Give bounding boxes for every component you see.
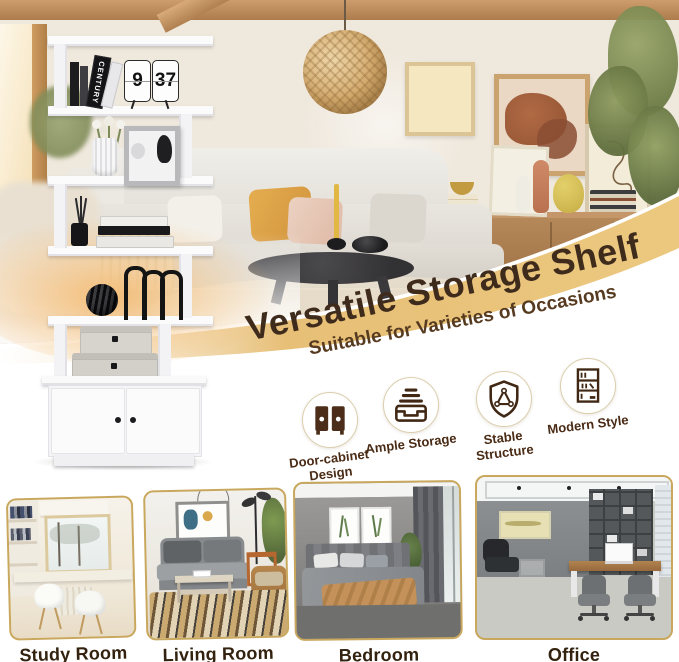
study-room-photo xyxy=(6,495,137,640)
book-stack xyxy=(96,216,172,246)
product-infographic: Versatile Storage Shelf Suitable for Var… xyxy=(0,0,679,662)
office-art xyxy=(499,511,551,539)
room-label: Office xyxy=(475,645,673,662)
feature-circle xyxy=(302,392,358,448)
flip-clock-hour: 9 xyxy=(124,60,151,102)
room-label: Study Room xyxy=(10,642,138,662)
imac xyxy=(605,543,633,564)
bed-pillow xyxy=(313,552,338,568)
modern-shelf-icon xyxy=(566,364,610,408)
study-window xyxy=(44,514,111,574)
arch-bookend xyxy=(160,270,183,320)
lounge-chair xyxy=(483,539,521,575)
door-cabinet-icon xyxy=(308,398,352,442)
feature-circle xyxy=(560,358,616,414)
door-knob xyxy=(130,417,136,423)
botanical-frame xyxy=(361,507,391,547)
bedroom-photo xyxy=(293,480,463,641)
botanical-frame xyxy=(329,507,359,547)
living-coffee-table xyxy=(175,575,234,604)
cabinet-door-left xyxy=(51,388,125,454)
reed-diffuser xyxy=(68,196,90,246)
cabinet-body xyxy=(48,385,202,457)
office-photo xyxy=(475,475,673,640)
shelf-panel xyxy=(54,324,67,380)
feature-circle xyxy=(383,377,439,433)
shelf-panel xyxy=(179,114,192,178)
glass-side-table xyxy=(519,559,545,577)
office-chair xyxy=(577,575,611,621)
bed-pillow xyxy=(340,553,365,568)
office-chair xyxy=(623,575,657,621)
room-label: Bedroom xyxy=(295,644,463,662)
book-spine xyxy=(70,62,79,106)
study-chair xyxy=(34,583,69,632)
bedroom-window xyxy=(443,486,463,602)
feature-circle xyxy=(476,371,532,427)
shelf-panel xyxy=(158,324,171,380)
storage-tray-icon xyxy=(389,383,433,427)
door-knob xyxy=(115,417,121,423)
room-label: Living Room xyxy=(147,642,290,662)
room-card-office: Office xyxy=(475,475,673,662)
shelf-panel xyxy=(54,184,67,248)
study-desk xyxy=(14,569,132,582)
ribbed-vase xyxy=(92,138,118,176)
shield-triangle-icon xyxy=(482,377,526,421)
decor-sphere xyxy=(86,284,118,316)
cabinet-top xyxy=(42,376,206,385)
flip-clock-minute: 37 xyxy=(152,60,179,102)
photo-frame xyxy=(124,126,180,186)
room-card-study: Study Room xyxy=(6,495,137,662)
shelf-board xyxy=(48,36,213,46)
study-chair xyxy=(74,590,109,637)
room-card-bedroom: Bedroom xyxy=(293,480,463,662)
cabinet-door-right xyxy=(126,388,200,454)
cabinet-plinth xyxy=(54,455,194,466)
product-shelf: CENTURY 9 37 xyxy=(28,30,218,470)
shelf-panel xyxy=(54,44,67,108)
feature-modern-style: Modern Style xyxy=(530,358,646,433)
room-card-living: Living Room xyxy=(143,487,290,662)
bedroom-rug xyxy=(296,604,462,639)
living-room-photo xyxy=(143,487,289,640)
